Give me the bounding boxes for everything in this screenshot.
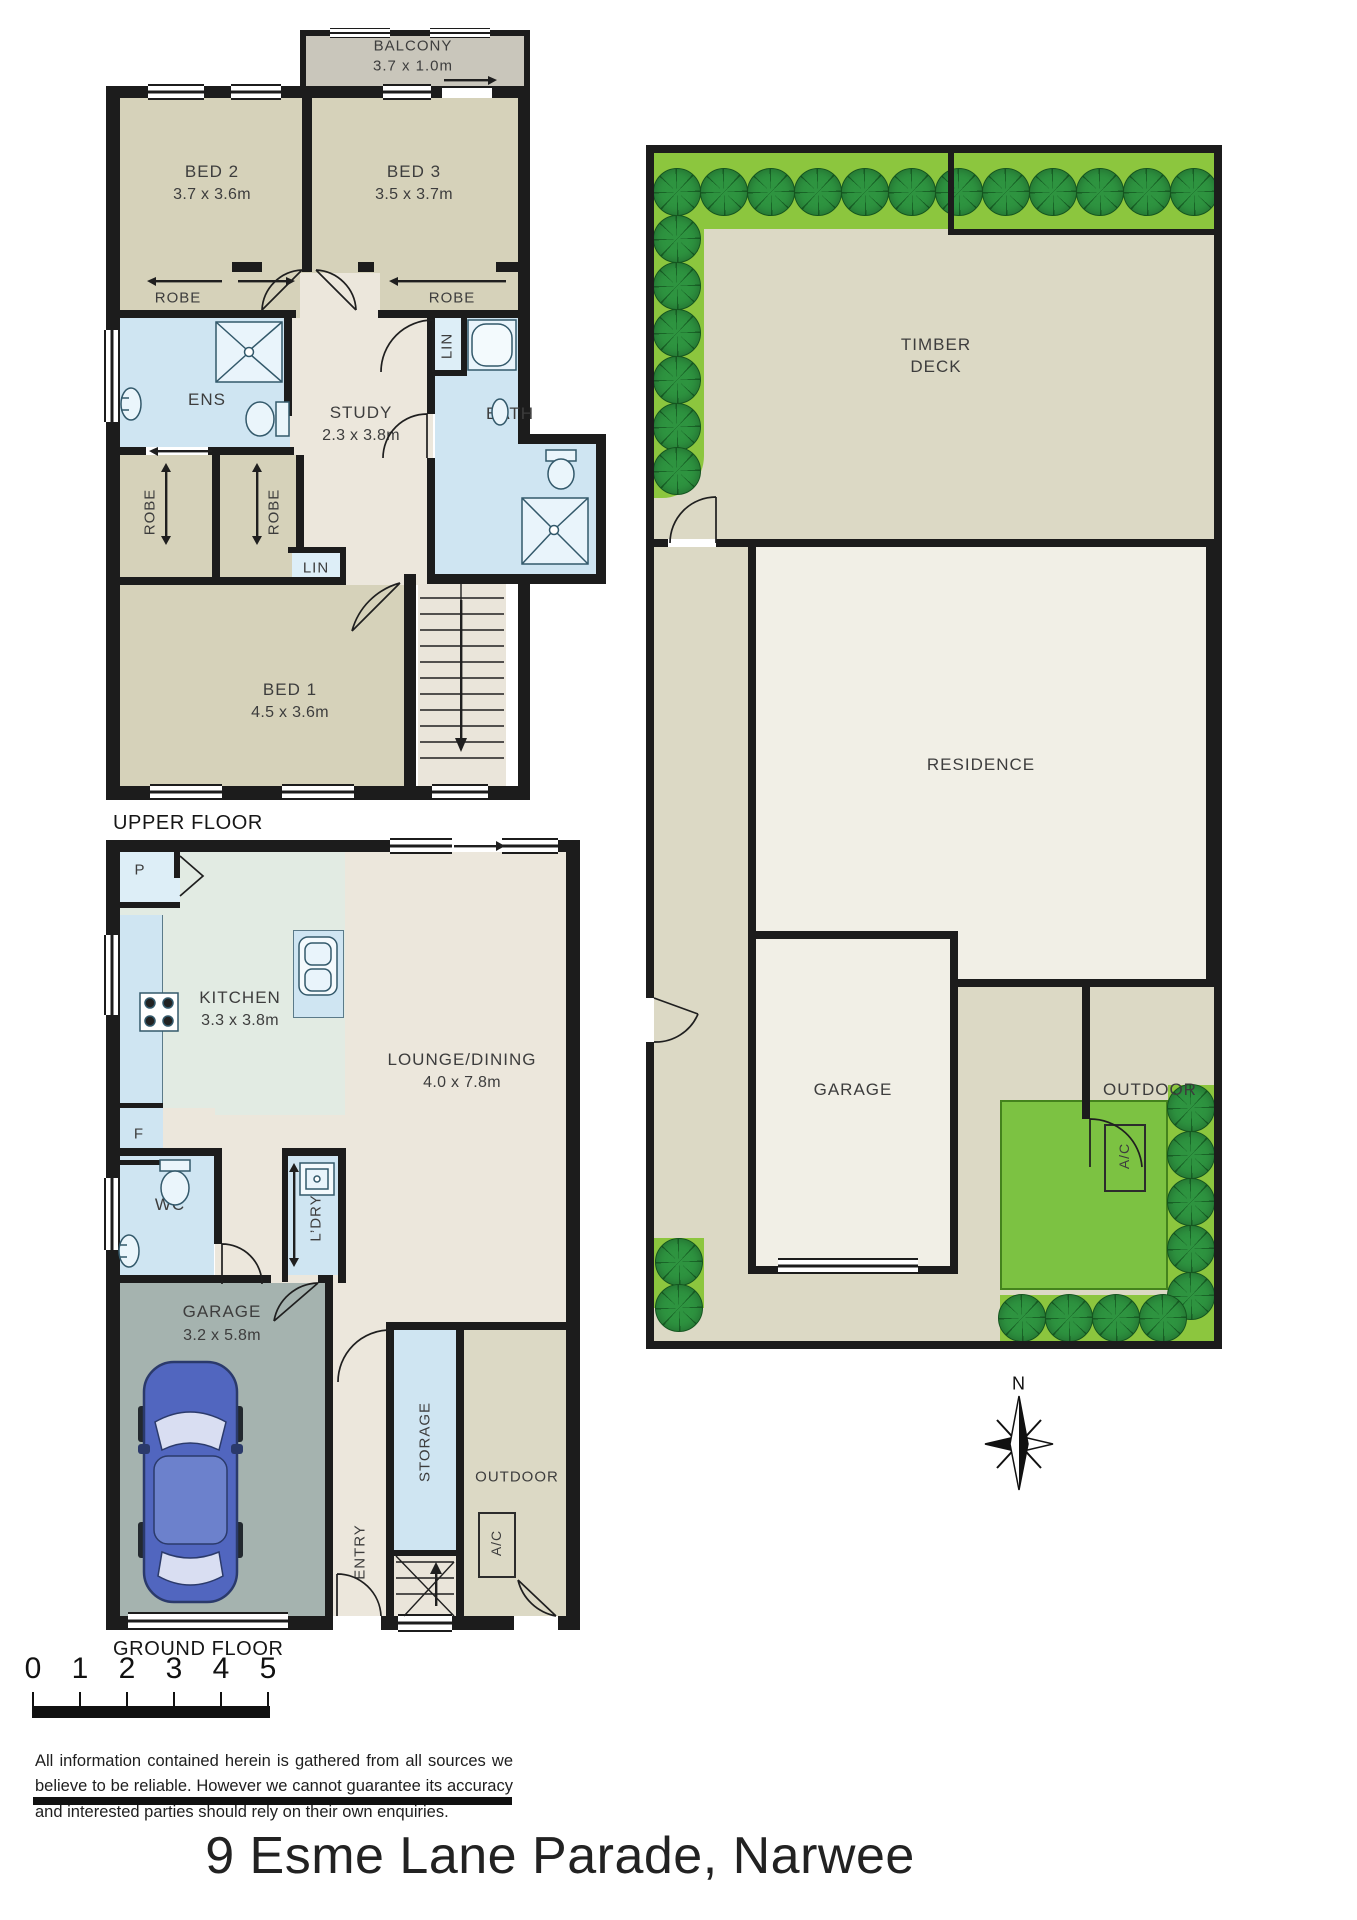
scale-tick-2: 2 — [119, 1652, 136, 1686]
stairs-upper-arrow — [455, 600, 467, 752]
direction-arrows — [147, 76, 506, 1267]
plan-linework — [0, 0, 1357, 1920]
scale-tick-3: 3 — [166, 1652, 183, 1686]
compass-icon — [985, 1396, 1053, 1490]
scale-tick-0: 0 — [25, 1652, 42, 1686]
disclaimer-text: All information contained herein is gath… — [35, 1749, 513, 1826]
floorplan-sheet: BALCONY 3.7 x 1.0m BED 2 3.7 x 3.6m BED … — [0, 0, 1357, 1920]
footer-divider — [33, 1797, 512, 1805]
compass-north-label: N — [1012, 1374, 1026, 1395]
stairs-entry — [396, 1556, 454, 1616]
scale-tick-5: 5 — [260, 1652, 277, 1686]
bathroom-fixtures — [119, 320, 588, 1267]
car-icon — [138, 1362, 243, 1602]
scale-bar-rule — [32, 1706, 270, 1718]
scale-tick-1: 1 — [72, 1652, 89, 1686]
scale-tick-4: 4 — [213, 1652, 230, 1686]
property-address: 9 Esme Lane Parade, Narwee — [180, 1826, 940, 1886]
kitchen-fixtures — [140, 937, 337, 1031]
